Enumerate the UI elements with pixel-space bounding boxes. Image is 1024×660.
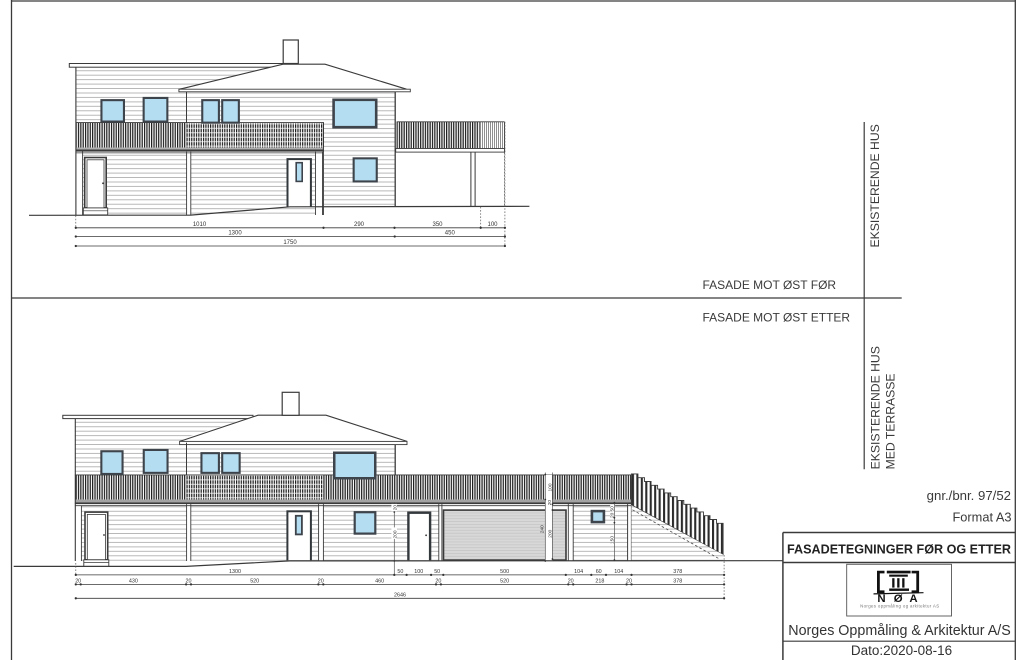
svg-text:378: 378: [673, 569, 682, 575]
svg-text:20: 20: [626, 578, 632, 584]
svg-text:350: 350: [432, 222, 443, 228]
svg-text:20: 20: [318, 578, 324, 584]
svg-text:2646: 2646: [394, 592, 406, 598]
svg-text:240: 240: [540, 525, 546, 533]
svg-text:520: 520: [500, 578, 509, 584]
svg-text:1300: 1300: [229, 569, 241, 575]
svg-text:Format A3: Format A3: [952, 510, 1011, 525]
svg-text:MED TERRASSE: MED TERRASSE: [883, 373, 897, 469]
svg-text:100: 100: [487, 222, 498, 228]
svg-text:gnr./bnr. 97/52: gnr./bnr. 97/52: [927, 488, 1011, 503]
svg-text:1750: 1750: [283, 240, 297, 246]
svg-text:1300: 1300: [228, 231, 242, 237]
svg-text:Norges oppmåling og arkitektur: Norges oppmåling og arkitektur AS: [860, 603, 939, 608]
svg-text:Norges Oppmåling & Arkitektur: Norges Oppmåling & Arkitektur A/S: [788, 623, 1011, 639]
svg-text:100: 100: [548, 483, 554, 491]
svg-text:450: 450: [445, 231, 456, 237]
svg-text:1010: 1010: [193, 222, 207, 228]
svg-text:20: 20: [610, 512, 616, 518]
svg-text:50: 50: [610, 506, 616, 512]
svg-text:290: 290: [354, 222, 365, 228]
svg-text:50: 50: [397, 569, 403, 575]
svg-text:20: 20: [547, 500, 553, 506]
svg-text:50: 50: [434, 569, 440, 575]
svg-text:104: 104: [614, 569, 623, 575]
svg-text:218: 218: [595, 578, 604, 584]
svg-text:20: 20: [435, 578, 441, 584]
svg-text:500: 500: [500, 569, 509, 575]
svg-text:EKSISTERENDE HUS: EKSISTERENDE HUS: [868, 346, 882, 469]
svg-text:20: 20: [568, 578, 574, 584]
svg-text:20: 20: [186, 578, 192, 584]
svg-text:20: 20: [392, 505, 398, 511]
svg-text:460: 460: [375, 578, 384, 584]
svg-text:FASADE MOT ØST FØR: FASADE MOT ØST FØR: [703, 278, 837, 292]
svg-text:20: 20: [75, 578, 81, 584]
svg-text:100: 100: [414, 569, 423, 575]
svg-text:378: 378: [673, 578, 682, 584]
svg-text:EKSISTERENDE HUS: EKSISTERENDE HUS: [868, 124, 882, 247]
svg-text:Dato:2020-08-16: Dato:2020-08-16: [851, 643, 952, 658]
svg-text:150: 150: [610, 536, 616, 544]
svg-text:FASADETEGNINGER FØR OG ETTER: FASADETEGNINGER FØR OG ETTER: [787, 543, 1011, 557]
svg-text:200: 200: [392, 530, 398, 538]
svg-text:FASADE MOT ØST ETTER: FASADE MOT ØST ETTER: [703, 310, 851, 324]
svg-text:430: 430: [129, 578, 138, 584]
svg-text:60: 60: [596, 569, 602, 575]
svg-text:200: 200: [548, 529, 554, 537]
svg-text:520: 520: [250, 578, 259, 584]
svg-text:104: 104: [574, 569, 583, 575]
